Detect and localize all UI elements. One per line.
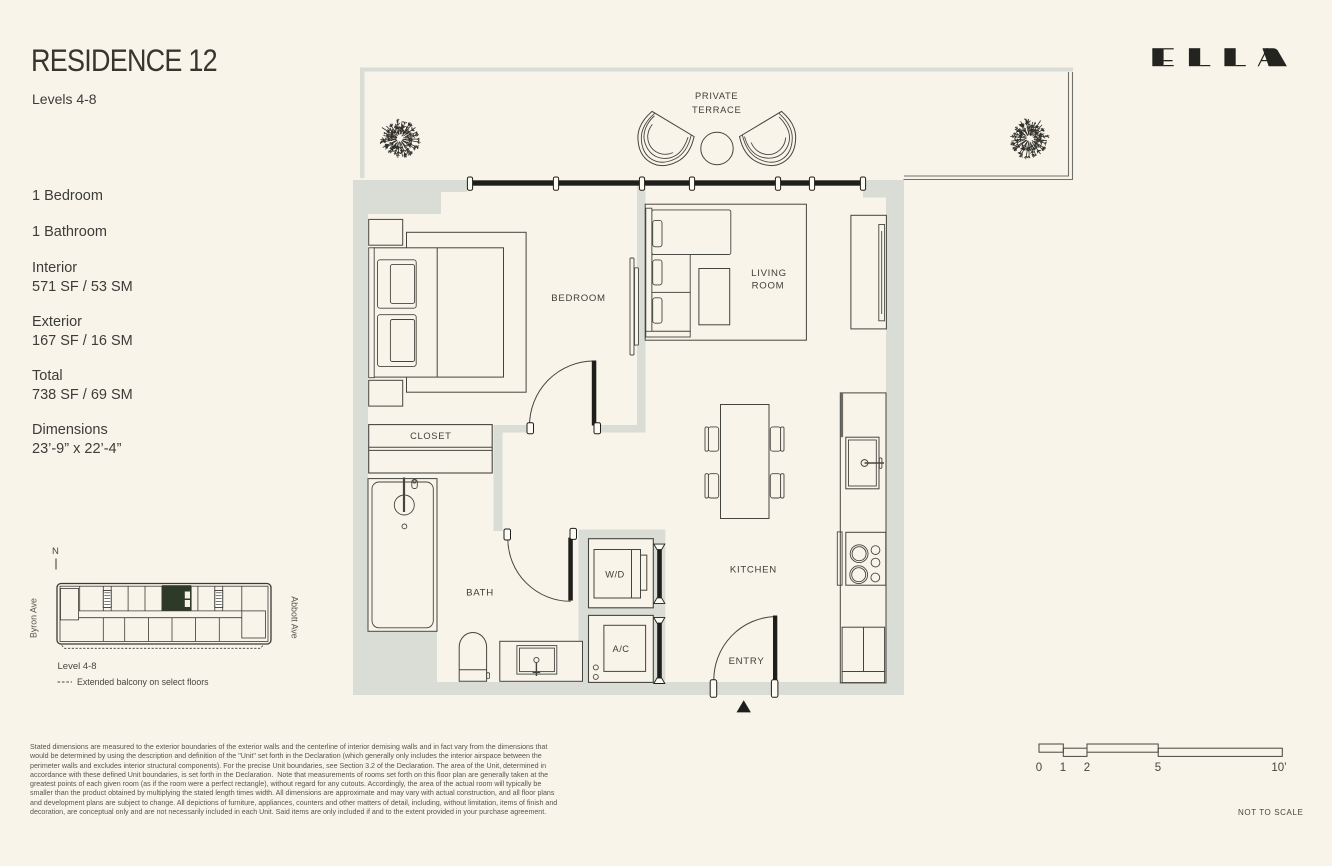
- svg-text:LIVING: LIVING: [751, 268, 787, 279]
- svg-text:Byron Ave: Byron Ave: [29, 598, 39, 638]
- svg-text:CLOSET: CLOSET: [410, 431, 451, 441]
- svg-text:A/C: A/C: [613, 644, 630, 654]
- svg-text:BEDROOM: BEDROOM: [551, 293, 605, 304]
- svg-text:1: 1: [1060, 762, 1066, 774]
- svg-text:10’: 10’: [1271, 762, 1286, 774]
- svg-text:BATH: BATH: [466, 588, 494, 599]
- svg-text:5: 5: [1155, 762, 1161, 774]
- svg-text:ENTRY: ENTRY: [729, 656, 765, 667]
- svg-text:Level 4-8: Level 4-8: [58, 661, 97, 672]
- svg-text:Abbott Ave: Abbott Ave: [290, 596, 300, 638]
- svg-text:TERRACE: TERRACE: [692, 105, 741, 115]
- svg-text:N: N: [52, 546, 59, 557]
- svg-text:W/D: W/D: [605, 570, 625, 580]
- svg-text:ROOM: ROOM: [752, 281, 785, 292]
- svg-text:2: 2: [1084, 762, 1090, 774]
- svg-text:Extended balcony on select flo: Extended balcony on select floors: [77, 677, 209, 687]
- svg-text:PRIVATE: PRIVATE: [695, 91, 738, 101]
- svg-text:KITCHEN: KITCHEN: [730, 565, 777, 576]
- svg-text:0: 0: [1036, 762, 1042, 774]
